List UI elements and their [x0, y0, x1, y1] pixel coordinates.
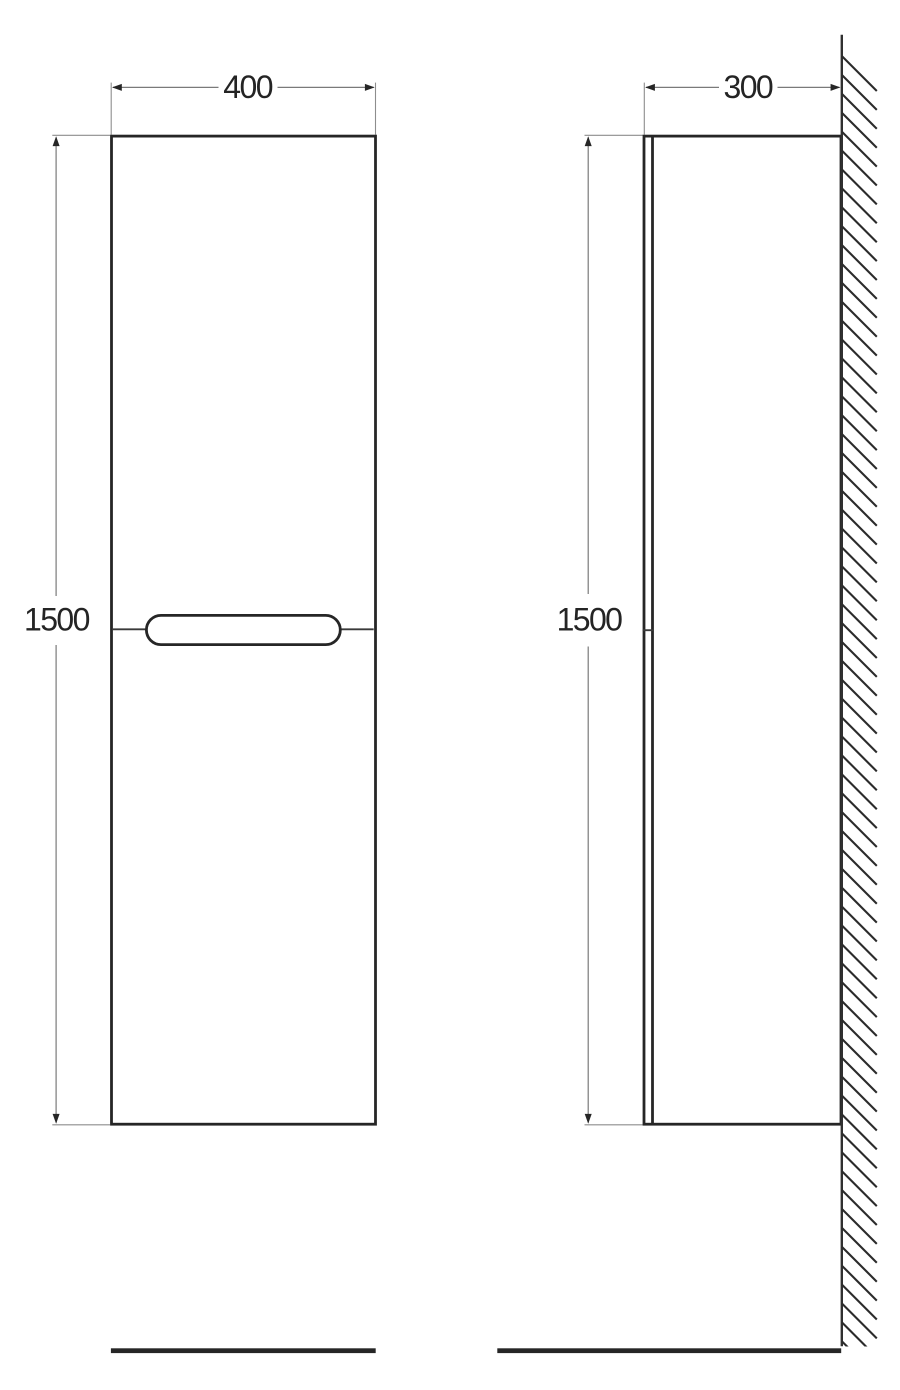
svg-text:300: 300 [724, 69, 773, 105]
svg-text:1500: 1500 [24, 602, 90, 638]
svg-text:1500: 1500 [557, 602, 623, 638]
svg-text:400: 400 [223, 69, 272, 105]
